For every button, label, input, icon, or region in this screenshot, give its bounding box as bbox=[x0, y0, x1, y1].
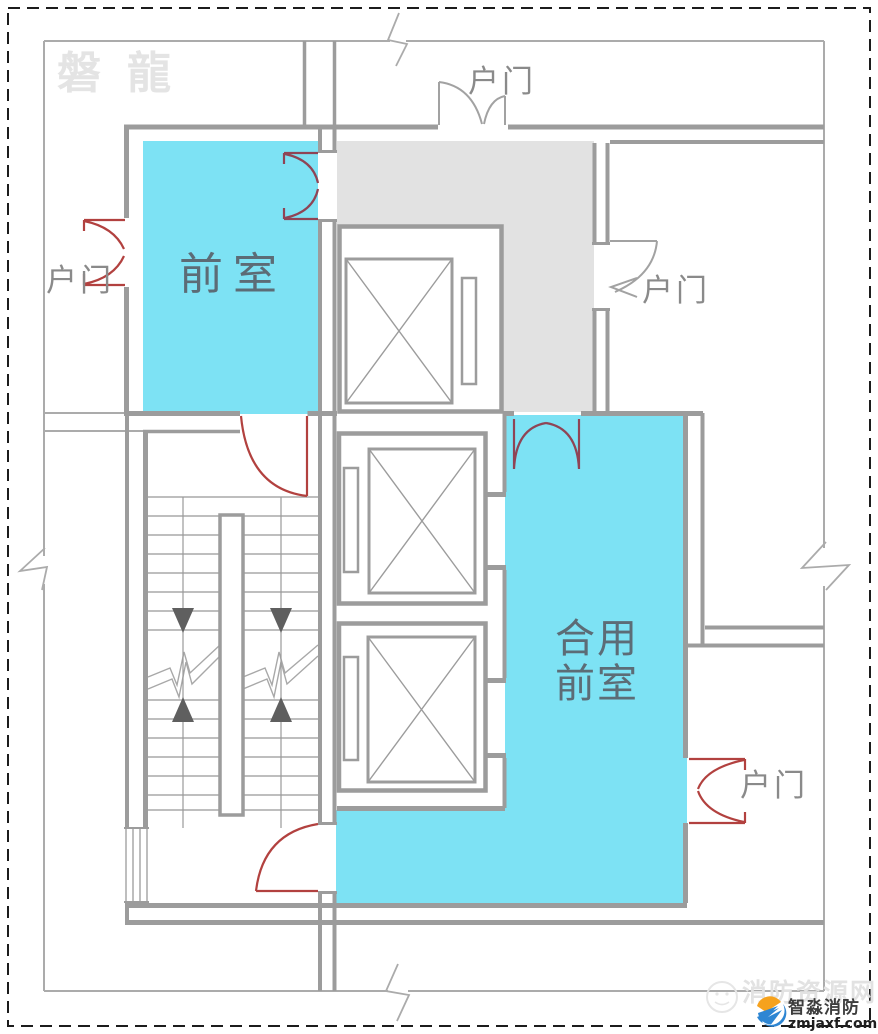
floor-plan: 磐龍 前室 合用 前室 户门 户门 户门 户门 消防资源网 智淼消防 zmjax… bbox=[0, 0, 878, 1034]
shared-front-room-label-line1: 合用 bbox=[555, 616, 639, 662]
stair-up-arrow bbox=[172, 697, 194, 722]
elevator-shafts bbox=[339, 227, 502, 791]
elevator-door-slot bbox=[344, 657, 358, 760]
shared-front-room-label-line2: 前室 bbox=[555, 661, 639, 707]
door-left-label: 户门 bbox=[46, 263, 114, 299]
front-room-label: 前室 bbox=[179, 249, 287, 300]
stair-window bbox=[123, 828, 150, 902]
elevator-door-slot bbox=[344, 468, 358, 572]
door-front-room-to-stair-swing bbox=[241, 416, 307, 496]
door-top-label: 户门 bbox=[468, 64, 536, 100]
elevator-shaft-1 bbox=[340, 227, 502, 412]
floor-plan-page: 磐龍 前室 合用 前室 户门 户门 户门 户门 消防资源网 智淼消防 zmjax… bbox=[0, 0, 878, 1034]
elevator-shaft-2 bbox=[339, 434, 486, 604]
elevator-door-slot bbox=[462, 278, 476, 384]
logo-company-name: 智淼消防 bbox=[788, 997, 860, 1018]
door-stair-to-shared-swing bbox=[256, 824, 318, 891]
brand-watermark: 磐龍 bbox=[57, 48, 197, 99]
logo-domain: zmjaxf.com bbox=[788, 1016, 877, 1032]
smiley-icon bbox=[707, 982, 737, 1012]
door-bottom-right-label: 户门 bbox=[740, 768, 808, 804]
stair-up-arrow bbox=[270, 697, 292, 722]
door-right-label: 户门 bbox=[642, 273, 710, 309]
elevator-shaft-3 bbox=[339, 624, 486, 791]
stair-center-wall bbox=[220, 515, 243, 815]
door-bottom-right-swing bbox=[689, 759, 745, 823]
stair-down-arrow bbox=[172, 608, 194, 633]
stair-down-arrow bbox=[270, 608, 292, 633]
logo: 智淼消防 zmjaxf.com bbox=[757, 996, 878, 1032]
